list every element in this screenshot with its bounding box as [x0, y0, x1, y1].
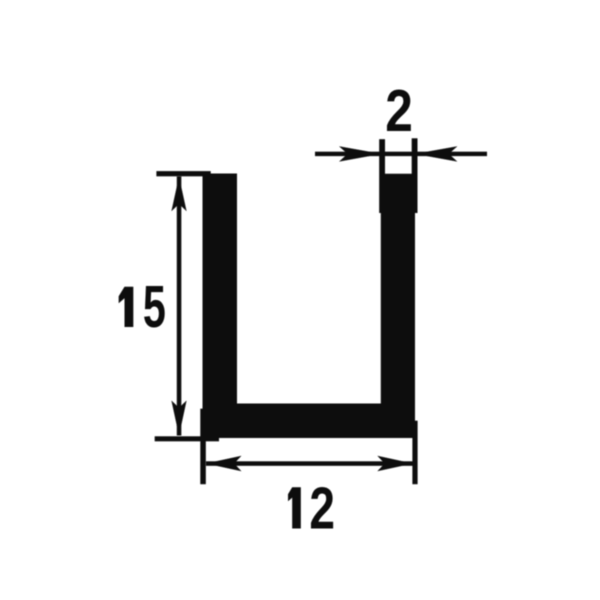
svg-text:5: 5: [143, 274, 166, 340]
svg-text:2: 2: [309, 476, 335, 542]
svg-text:2: 2: [385, 78, 413, 144]
